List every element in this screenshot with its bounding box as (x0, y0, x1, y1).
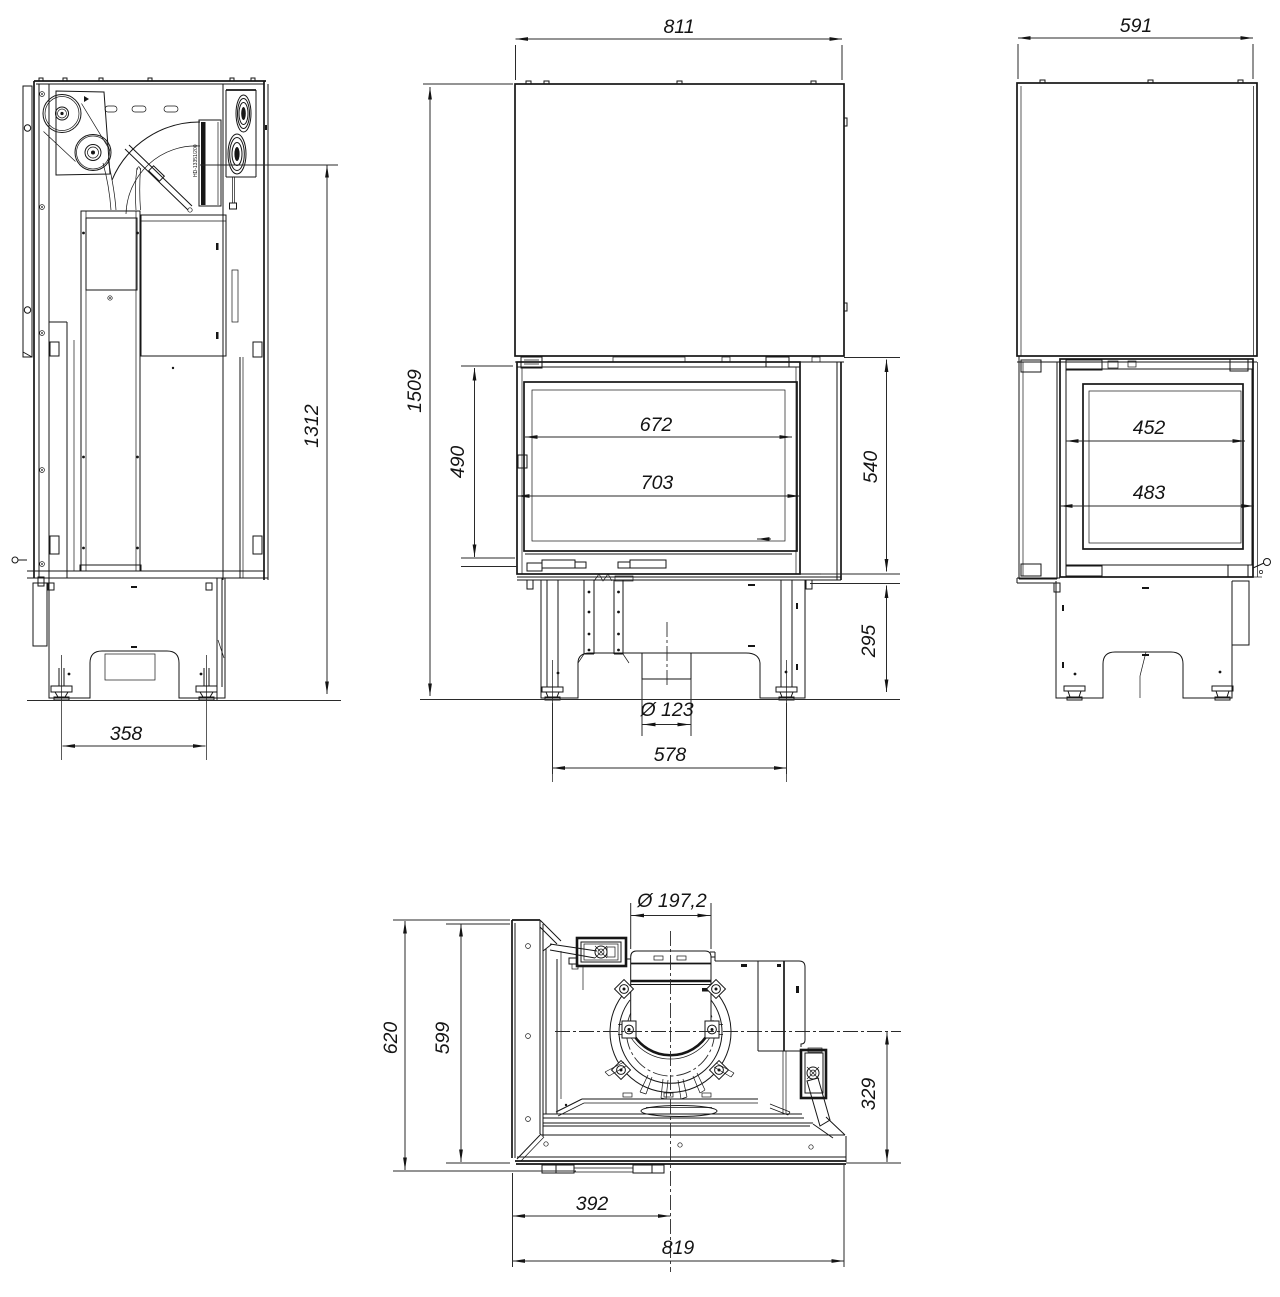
svg-text:329: 329 (858, 1078, 880, 1111)
svg-text:490: 490 (447, 446, 469, 479)
svg-text:599: 599 (432, 1022, 454, 1055)
svg-text:295: 295 (858, 625, 880, 659)
svg-text:578: 578 (654, 744, 687, 766)
svg-text:703: 703 (641, 472, 674, 494)
svg-text:452: 452 (1133, 417, 1166, 439)
svg-text:591: 591 (1120, 15, 1153, 37)
svg-text:1509: 1509 (404, 369, 426, 413)
svg-text:HD-13351/200: HD-13351/200 (193, 144, 199, 177)
svg-text:1312: 1312 (301, 404, 323, 448)
svg-text:620: 620 (380, 1022, 402, 1055)
svg-text:358: 358 (110, 723, 143, 745)
svg-text:811: 811 (663, 16, 694, 38)
svg-text:540: 540 (860, 451, 882, 484)
svg-text:819: 819 (662, 1237, 695, 1259)
svg-text:392: 392 (576, 1193, 609, 1215)
svg-text:672: 672 (640, 414, 673, 436)
svg-text:Ø 197,2: Ø 197,2 (636, 890, 707, 912)
svg-text:Ø 123: Ø 123 (639, 699, 693, 721)
svg-text:483: 483 (1133, 482, 1166, 504)
